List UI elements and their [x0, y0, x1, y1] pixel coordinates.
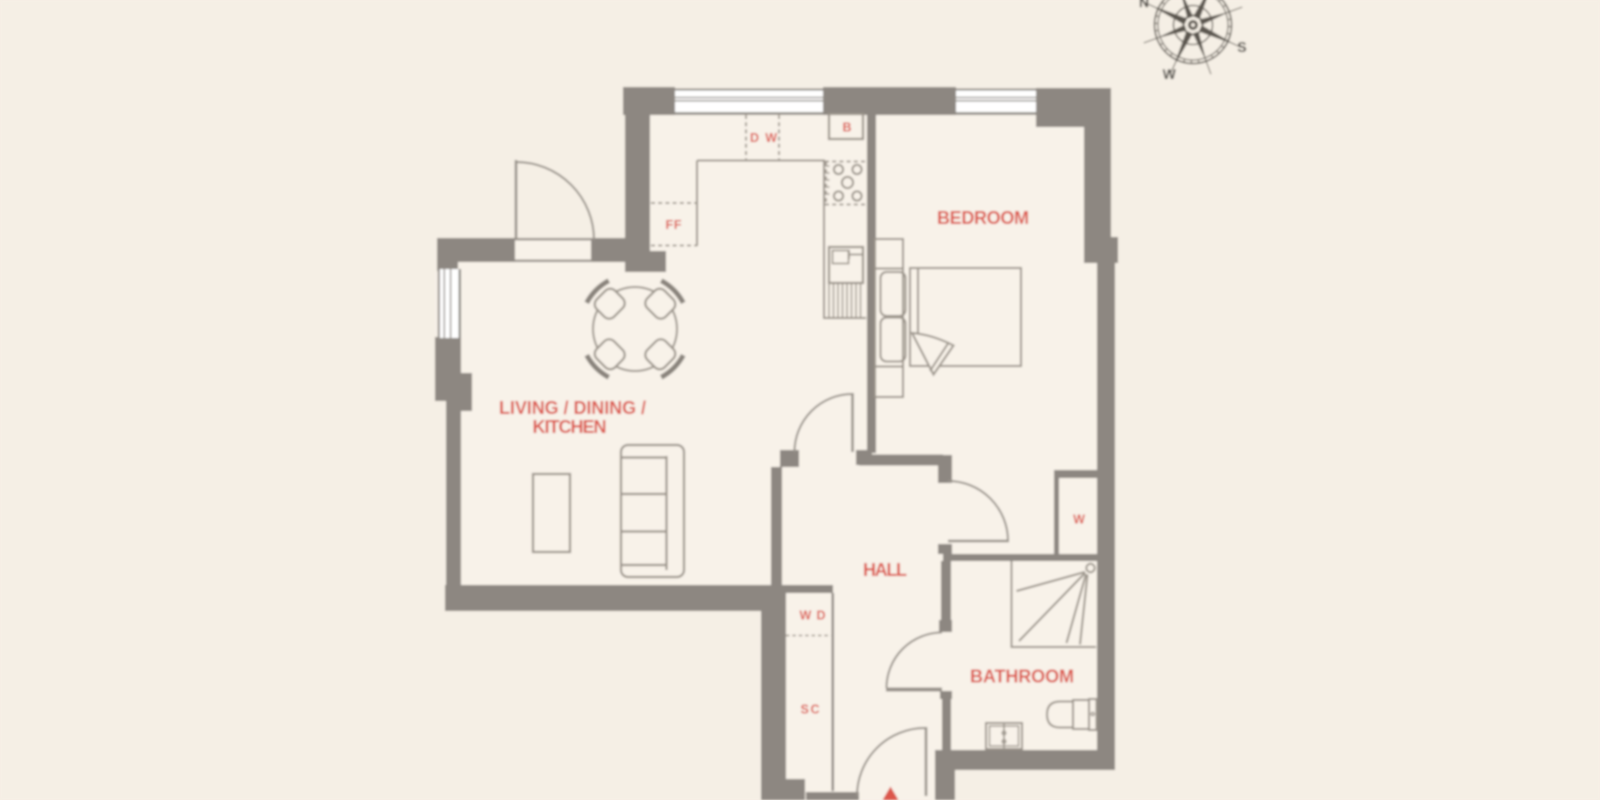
svg-text:B: B — [842, 121, 851, 135]
svg-text:BEDROOM: BEDROOM — [937, 208, 1029, 228]
svg-text:W: W — [1073, 513, 1085, 527]
svg-text:SC: SC — [801, 703, 820, 717]
svg-text:W: W — [1163, 66, 1177, 82]
svg-text:S: S — [1237, 39, 1246, 55]
svg-text:N: N — [1139, 0, 1149, 10]
svg-text:HALL: HALL — [863, 560, 907, 580]
svg-text:BATHROOM: BATHROOM — [970, 667, 1074, 687]
svg-text:FF: FF — [666, 218, 682, 232]
svg-text:LIVING / DINING /: LIVING / DINING / — [499, 398, 646, 418]
svg-text:KITCHEN: KITCHEN — [533, 417, 607, 437]
